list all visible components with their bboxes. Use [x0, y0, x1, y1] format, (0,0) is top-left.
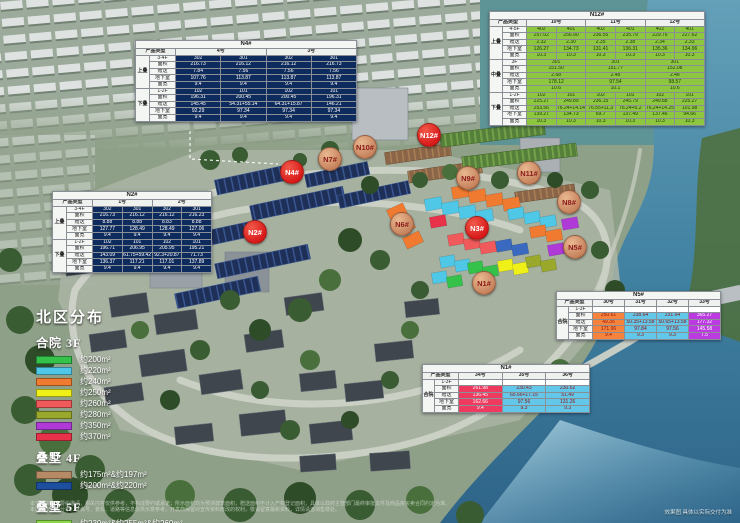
legend-color-swatch	[36, 471, 72, 479]
marker-n7[interactable]: N7#	[318, 147, 342, 171]
legend-item-label: 约250m²	[80, 387, 111, 398]
aerial-masterplan-scene: N4#产品类型4号3号上叠3-4F302301302301面积216.73216…	[0, 0, 740, 523]
legend-color-swatch	[36, 400, 72, 408]
legend-item-label: 约175m²&约197m²	[80, 469, 147, 480]
legend-color-swatch	[36, 356, 72, 364]
legend-color-swatch	[36, 378, 72, 386]
marker-n10[interactable]: N10#	[353, 135, 377, 159]
legend-group-title: 叠墅 4F	[36, 449, 183, 466]
table-n1: N1#产品类型34号35号36号合院1-3F面积261.98230.43230.…	[422, 364, 590, 413]
legend-item: 约250m²	[36, 387, 183, 398]
table-n12: N12#产品类型10号11号12号上叠4-5F40240140240140240…	[489, 11, 705, 126]
legend-color-swatch	[36, 433, 72, 441]
legend-item: 约220m²	[36, 365, 183, 376]
legend-title: 北区分布	[36, 306, 183, 327]
legend-color-swatch	[36, 367, 72, 375]
legend-item: 约280m²	[36, 409, 183, 420]
legend-item: 约370m²	[36, 431, 183, 442]
legend-item-label: 约350m²	[80, 420, 111, 431]
legend-color-swatch	[36, 520, 72, 523]
legend-item: 约200m²&约220m²	[36, 480, 183, 491]
marker-n4[interactable]: N4#	[280, 160, 304, 184]
legend-item: 约260m²	[36, 398, 183, 409]
marker-n12[interactable]: N12#	[417, 123, 441, 147]
disclaimer: 本宣传资料为要约邀请，相关内容仅供参考，不构成要约或承诺；所示面积均为预测建筑面…	[30, 501, 650, 513]
disclaimer-line-2: 本图所示户型分布、楼栋号、景观、道路等信息仅供示意参考，开发商保留对宣传资料修改…	[30, 507, 650, 513]
marker-n11[interactable]: N11#	[517, 161, 541, 185]
legend-item-label: 约230m²&约255m²&约260m²	[80, 518, 183, 523]
legend-item: 约230m²&约255m²&约260m²	[36, 518, 183, 523]
legend-group-1: 叠墅 4F约175m²&约197m²约200m²&约220m²	[36, 449, 183, 491]
marker-n9[interactable]: N9#	[456, 166, 480, 190]
legend-item: 约350m²	[36, 420, 183, 431]
marker-n3[interactable]: N3#	[465, 216, 489, 240]
table-n4: N4#产品类型4号3号上叠3-4F302301302301面积216.73216…	[135, 40, 357, 122]
legend-item-label: 约200m²&约220m²	[80, 480, 147, 491]
legend-color-swatch	[36, 411, 72, 419]
marker-n2[interactable]: N2#	[243, 220, 267, 244]
legend-item-label: 约220m²	[80, 365, 111, 376]
legend-color-swatch	[36, 389, 72, 397]
legend-item: 约200m²	[36, 354, 183, 365]
table-n2: N2#产品类型1号2号上叠3-4F302301302301面积216.73216…	[52, 191, 212, 273]
legend-item-label: 约370m²	[80, 431, 111, 442]
table-n5: N5#产品类型30号31号32号33号合院1-3F面积250.61238.642…	[556, 291, 721, 340]
legend-item-label: 约260m²	[80, 398, 111, 409]
legend-item-label: 约200m²	[80, 354, 111, 365]
legend: 北区分布 合院 3F约200m²约220m²约240m²约250m²约260m²…	[36, 306, 183, 523]
legend-item: 约240m²	[36, 376, 183, 387]
marker-n8[interactable]: N8#	[557, 190, 581, 214]
legend-color-swatch	[36, 482, 72, 490]
legend-item-label: 约240m²	[80, 376, 111, 387]
legend-item-label: 约280m²	[80, 409, 111, 420]
legend-group-title: 合院 3F	[36, 334, 183, 351]
corner-note: 效果图 具体以实际交付为准	[664, 508, 732, 516]
legend-item: 约175m²&约197m²	[36, 469, 183, 480]
legend-color-swatch	[36, 422, 72, 430]
marker-n5[interactable]: N5#	[563, 235, 587, 259]
marker-n6[interactable]: N6#	[390, 212, 414, 236]
legend-group-0: 合院 3F约200m²约220m²约240m²约250m²约260m²约280m…	[36, 334, 183, 442]
marker-n1[interactable]: N1#	[472, 271, 496, 295]
